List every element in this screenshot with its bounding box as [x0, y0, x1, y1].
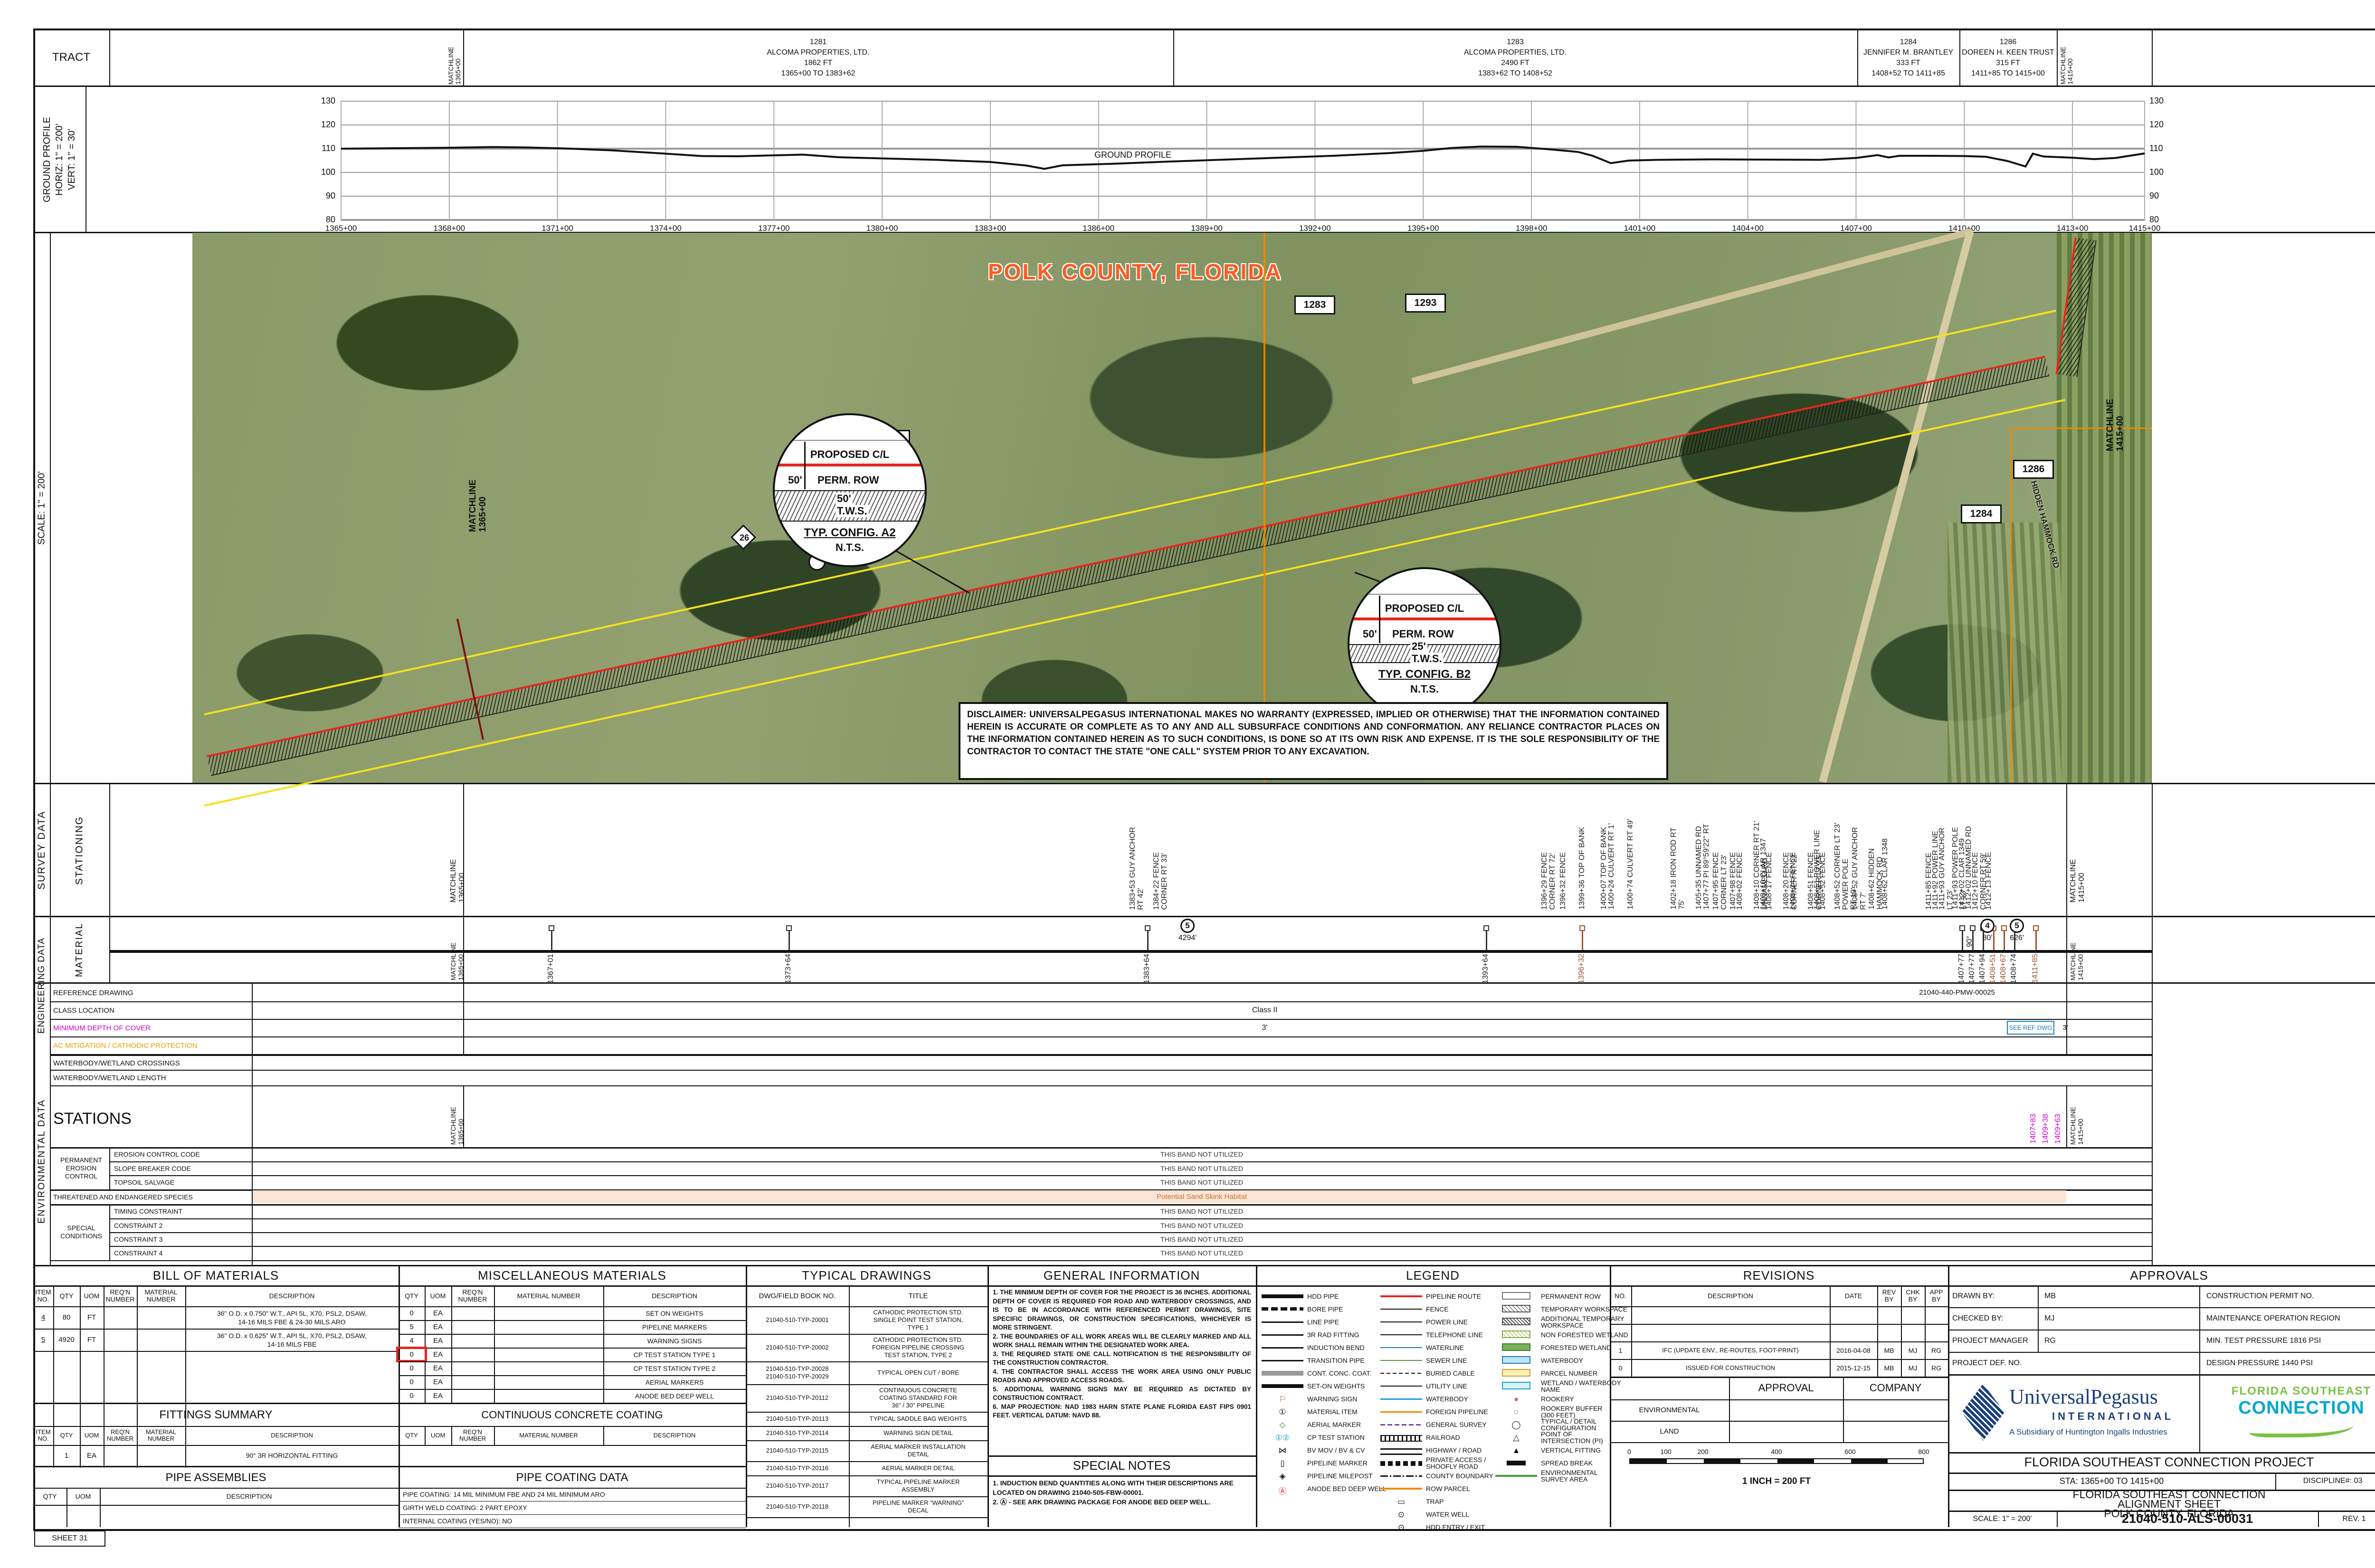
- engineering-row-value: Class II: [463, 1001, 2066, 1019]
- misc-qty: 4: [399, 1335, 425, 1346]
- typ-dwg-title: PIPELINE MARKER “WARNING” DECAL: [849, 1496, 988, 1517]
- legend-label: FORESTED WETLAND: [1541, 1344, 1612, 1351]
- rev-cell: RG: [1925, 1341, 1948, 1359]
- tws-label: T.W.S.: [836, 505, 869, 517]
- survey-callout: 1400+24 CULVERT RT 1': [1607, 823, 1615, 910]
- profile-ytick: 100: [2149, 167, 2172, 177]
- fittings-header: DESCRIPTION: [185, 1426, 399, 1445]
- gensurvey-icon: [1380, 1420, 1422, 1429]
- erosion-row-label: TOPSOIL SALVAGE: [114, 1175, 247, 1189]
- survey-callout: 1399+36 TOP OF BANK: [1578, 827, 1586, 910]
- material-marker-stem: [1962, 930, 1963, 950]
- legend-label: POWER LINE: [1426, 1319, 1468, 1325]
- profile-xtick: 1407+00: [1833, 224, 1879, 233]
- proposed-cl-line: [775, 464, 925, 466]
- profile-xtick: 1374+00: [643, 224, 688, 233]
- legend-col1-row: ⒶANODE BED DEEP WELL: [1262, 1482, 1376, 1495]
- survey-callout: 1400+74 CULVERT RT 49': [1626, 819, 1634, 910]
- map-tract-box: 1293: [1405, 294, 1446, 313]
- typ-dwg-no: 21040-510-TYP-20112: [746, 1384, 849, 1412]
- divider: [137, 1426, 138, 1468]
- legend-col3-row: WETLAND / WATERBODY NAME: [1495, 1379, 1607, 1392]
- rev-cell: [1610, 1324, 1631, 1341]
- engineering-row-value: 3': [463, 1019, 2066, 1036]
- divider: [2066, 784, 2067, 916]
- typ-config-a2-callout: PROPOSED C/L50'PERM. ROW50'T.W.S.TYP. CO…: [773, 413, 927, 567]
- special-group-label: SPECIAL CONDITIONS: [53, 1204, 109, 1260]
- misc-uom: EA: [425, 1389, 451, 1403]
- fittings-uom: EA: [80, 1445, 104, 1466]
- profile-xtick: 1413+00: [2050, 224, 2095, 233]
- approval-row-label: LAND: [1610, 1421, 1729, 1442]
- material-station: 1408+74: [2010, 954, 2018, 984]
- fittings-header: REQ'N NUMBER: [104, 1426, 137, 1445]
- revision-number: REV. 1: [2318, 1511, 2375, 1527]
- waterbody-icon: [1380, 1395, 1422, 1403]
- divider: [50, 1070, 252, 1071]
- rev-cell: 1: [1610, 1341, 1631, 1359]
- tract-cell: 1281 ALCOMA PROPERTIES, LTD. 1862 FT 136…: [463, 33, 1173, 83]
- perm-row-dim: 50': [1363, 628, 1377, 640]
- rev-cell: MJ: [1901, 1341, 1925, 1359]
- maintenance-label: MAINTENANCE OPERATION REGION: [2206, 1307, 2375, 1330]
- nts-label: N.T.S.: [775, 542, 925, 554]
- discipline: DISCIPLINE#: 03: [2275, 1473, 2375, 1490]
- legend-col3-row: TEMPORARY WORKSPACE: [1495, 1302, 1607, 1315]
- typ-config-name: TYP. CONFIG. A2: [775, 526, 925, 540]
- rev-cell: [1610, 1306, 1631, 1324]
- matitem-icon: ①: [1262, 1407, 1303, 1416]
- divider: [2066, 1085, 2067, 1147]
- survey-callout: 1408+17 FENCE: [1765, 852, 1773, 910]
- county-icon: [1380, 1472, 1422, 1480]
- pipe-assembly-length: 80': [1973, 934, 2002, 942]
- legend-col3-row: ENVIRONMENTAL SURVEY AREA: [1495, 1469, 1607, 1482]
- divider: [451, 1426, 452, 1445]
- tws-dim: 50': [836, 493, 853, 505]
- profile-xtick: 1404+00: [1725, 224, 1771, 233]
- legend-col3-row: ◌ROOKERY BUFFER (300 FEET): [1495, 1405, 1607, 1418]
- legend-label: FENCE: [1426, 1306, 1448, 1312]
- scalebar-label: 0: [1620, 1447, 1639, 1456]
- divider: [50, 1085, 252, 1086]
- warnsign-icon: ⚐: [1262, 1395, 1303, 1403]
- profile-band-label: GROUND PROFILE HORIZ: 1" = 200' VERT: 1"…: [33, 90, 85, 229]
- fsc-swoosh-icon: [2249, 1421, 2354, 1437]
- section-title-miscellaneous-materials: MISCELLANEOUS MATERIALS: [399, 1266, 746, 1285]
- divider: [603, 1426, 604, 1445]
- legend-col1-row: 3R RAD FITTING: [1262, 1328, 1376, 1341]
- legend-col2-row: ⊙HDD ENTRY / EXIT: [1380, 1520, 1492, 1533]
- pipe-assembly-circle: 5: [1180, 919, 1195, 933]
- rev-cell: [1877, 1324, 1901, 1341]
- typ-dwg-no: 21040-510-TYP-20117: [746, 1475, 849, 1496]
- titleblock-scale: SCALE: 1" = 200': [1948, 1511, 2057, 1527]
- map-scale-label: SCALE: 1" = 200': [33, 238, 50, 779]
- typ-dwg-no: 21040-510-TYP-20115: [746, 1440, 849, 1461]
- scalebar-label: 100: [1656, 1447, 1675, 1456]
- bom-item: 4: [33, 1306, 53, 1329]
- scale-bar: [1629, 1458, 1924, 1464]
- legend-label: WATER WELL: [1426, 1511, 1469, 1518]
- misc-desc: PIPELINE MARKERS: [603, 1320, 746, 1334]
- checked-by-value: MJ: [2038, 1307, 2199, 1330]
- typ-dwg-no: 21040-510-TYP-20113: [746, 1412, 849, 1426]
- typ-dwg-title: AERIAL MARKER INSTALLATION DETAIL: [849, 1440, 988, 1461]
- parcel-line-orange: [2010, 428, 2152, 429]
- misc-desc: CP TEST STATION TYPE 1: [603, 1348, 746, 1361]
- hddentry-icon: ⊙: [1380, 1523, 1422, 1531]
- special-notes-title: SPECIAL NOTES: [988, 1455, 1256, 1475]
- legend-col2-row: FOREIGN PIPELINE: [1380, 1405, 1492, 1418]
- legend-label: WATERBODY: [1541, 1357, 1583, 1364]
- survey-callout: 1384+22 FENCE CORNER RT 33': [1152, 852, 1168, 910]
- band-value: THIS BAND NOT UTILIZED: [252, 1246, 2152, 1260]
- profile-xtick: 1415+00: [2122, 224, 2167, 233]
- legend-label: FOREIGN PIPELINE: [1426, 1408, 1488, 1415]
- survey-row-label: STATIONING: [50, 789, 109, 912]
- material-station: 1408+51: [1989, 954, 1997, 984]
- material-marker-stem: [1147, 930, 1149, 950]
- misc-desc: ANODE BED DEEP WELL: [603, 1389, 746, 1403]
- survey-callout: 1396+32 FENCE: [1559, 852, 1567, 910]
- tel-icon: [1380, 1330, 1422, 1339]
- pipe-assembly-length: 626': [2003, 934, 2031, 942]
- sta-range: STA: 1365+00 TO 1415+00: [1948, 1473, 2275, 1490]
- parcelnum-icon: [1495, 1369, 1537, 1378]
- scalebar-label: 800: [1914, 1447, 1933, 1456]
- legend-label: BV MOV / BV & CV: [1307, 1447, 1365, 1454]
- fittings-title: FITTINGS SUMMARY: [33, 1403, 399, 1426]
- pipe-coating-row: INTERNAL COATING (YES/NO): NO: [403, 1514, 742, 1528]
- fsc-line1: FLORIDA SOUTHEAST: [2223, 1385, 2375, 1398]
- fittings-desc: 90° 3R HORIZONTAL FITTING: [185, 1445, 399, 1466]
- legend-label: PIPELINE MARKER: [1307, 1460, 1368, 1466]
- band-value: THIS BAND NOT UTILIZED: [252, 1175, 2152, 1189]
- profile-xtick: 1392+00: [1292, 224, 1338, 233]
- legend-label: BORE PIPE: [1307, 1306, 1343, 1312]
- utility-icon: [1380, 1382, 1422, 1390]
- perm-row-dim: 50': [788, 474, 802, 486]
- rev-cell: [1631, 1324, 1830, 1341]
- engineering-row-right: 21040-440-PMW-00025: [1852, 983, 2061, 1001]
- matchline-right-label: MATCHLINE 1415+00: [2060, 32, 2077, 85]
- rev-cell: MB: [1877, 1359, 1901, 1377]
- rev-header: APP BY: [1925, 1285, 1948, 1306]
- rev-header: REV BY: [1877, 1285, 1901, 1306]
- legend-col1-row: ▯PIPELINE MARKER: [1262, 1456, 1376, 1469]
- divider: [2152, 784, 2153, 916]
- profile-ytick: 130: [313, 96, 335, 106]
- typ-dwg-title: CONTINUOUS CONCRETE COATING STANDARD FOR…: [849, 1384, 988, 1412]
- rev-header: CHK BY: [1901, 1285, 1925, 1306]
- tws-label: T.W.S.: [1410, 653, 1444, 665]
- engineering-row-label: REFERENCE DRAWING: [53, 986, 248, 999]
- survey-callout: 1405+35 UNNAMED RD: [1695, 826, 1703, 910]
- induction-icon: [1262, 1343, 1303, 1352]
- matchline-left-label: MATCHLINE 1365+00: [447, 32, 465, 85]
- section-title-typical-drawings: TYPICAL DRAWINGS: [746, 1266, 988, 1285]
- parcel-line-orange: [2010, 428, 2012, 783]
- legend-label: CP TEST STATION: [1307, 1434, 1365, 1441]
- legend-col3-row: WATERBODY: [1495, 1354, 1607, 1367]
- ccc-header: QTY: [399, 1426, 425, 1445]
- misc-uom: EA: [425, 1334, 451, 1348]
- env-station-magenta: 1407+83: [2029, 1114, 2037, 1144]
- special-notes-text: 1. INDUCTION BEND QUANTITIES ALONG WITH …: [993, 1478, 1251, 1526]
- legend-col1-row: BORE PIPE: [1262, 1302, 1376, 1315]
- drawing-number: 21040-510-ALS-00031: [2057, 1511, 2318, 1527]
- scalebar-label: 600: [1841, 1447, 1860, 1456]
- profile-xtick: 1377+00: [751, 224, 797, 233]
- env-row-label: WATERBODY/WETLAND LENGTH: [53, 1072, 248, 1084]
- material-marker-flag: [2033, 925, 2039, 931]
- legend-label: SET-ON WEIGHTS: [1307, 1383, 1365, 1389]
- material-marker-stem: [2035, 930, 2037, 950]
- transition-icon: [1262, 1356, 1303, 1365]
- pm-value: RG: [2038, 1330, 2199, 1352]
- material-station: 1411+85: [2031, 954, 2039, 983]
- pipe-assembly-circle: 5: [2010, 919, 2024, 933]
- pipe-coating-title: PIPE COATING DATA: [399, 1466, 746, 1488]
- fittings-header: UOM: [80, 1426, 104, 1445]
- legend-col2-row: ROW PARCEL: [1380, 1482, 1492, 1495]
- material-station: 1393+64: [1482, 954, 1490, 984]
- legend-col2-row: PIPELINE ROUTE: [1380, 1290, 1492, 1302]
- legend-label: COUNTY BOUNDARY: [1426, 1473, 1493, 1479]
- typ-dwg-no: 21040-510-TYP-20001: [746, 1306, 849, 1334]
- legend-label: WETLAND / WATERBODY NAME: [1541, 1379, 1621, 1393]
- material-marker-flag: [1145, 925, 1150, 931]
- legend-col3-row: NON FORESTED WETLAND: [1495, 1328, 1607, 1341]
- setweights-icon: [1262, 1382, 1303, 1390]
- profile-ytick: 90: [2149, 191, 2172, 201]
- company-header: COMPANY: [1843, 1377, 1948, 1399]
- special-row-label: TIMING CONSTRAINT: [114, 1204, 247, 1218]
- profile-ytick: 120: [313, 120, 335, 130]
- up-tagline: A Subsidiary of Huntington Ingalls Indus…: [2009, 1427, 2167, 1437]
- legend-col2-row: TELEPHONE LINE: [1380, 1328, 1492, 1341]
- erosion-row-label: SLOPE BREAKER CODE: [114, 1161, 247, 1175]
- bore-icon: [1262, 1305, 1303, 1313]
- divider: [2066, 983, 2067, 1054]
- anode-icon: Ⓐ: [1262, 1484, 1303, 1493]
- ccc-title: CONTINUOUS CONCRETE COATING: [399, 1403, 746, 1426]
- wetname-icon: [1495, 1382, 1537, 1390]
- env-stations-label: STATIONS: [53, 1107, 248, 1131]
- profile-xtick: 1383+00: [968, 224, 1013, 233]
- profile-ytick: 120: [2149, 120, 2172, 130]
- approval-header: APPROVAL: [1729, 1377, 1843, 1399]
- typdetail-icon: ◯: [1495, 1420, 1537, 1429]
- row-north-edge: [775, 440, 925, 441]
- env-station-magenta: 1409+63: [2054, 1114, 2062, 1144]
- divider: [33, 1505, 399, 1506]
- section-title-revisions: REVISIONS: [1610, 1266, 1948, 1285]
- divider: [2152, 29, 2153, 86]
- trap-icon: ▭: [1380, 1497, 1422, 1506]
- survey-callout: 1407+95 FENCE CORNER LT 23': [1712, 852, 1728, 910]
- legend-label: PIPELINE ROUTE: [1426, 1293, 1481, 1300]
- stations-matchline-right: MATCHLINE 1415+00: [2069, 1088, 2090, 1145]
- rev-cell: MJ: [1901, 1359, 1925, 1377]
- legend-label: POINT OF INTERSECTION (PI): [1541, 1431, 1603, 1444]
- misc-uom: EA: [425, 1306, 451, 1320]
- up-wordmark: UniversalPegasus: [2009, 1385, 2158, 1409]
- bv-icon: ⋈: [1262, 1446, 1303, 1454]
- orchard-rows: [1947, 523, 2061, 783]
- drawn-by-value: MB: [2038, 1285, 2199, 1307]
- profile-xtick: 1398+00: [1509, 224, 1554, 233]
- legend-col2-row: PRIVATE ACCESS / SHOOFLY ROAD: [1380, 1456, 1492, 1469]
- material-marker-stem: [1582, 930, 1583, 950]
- misc-header: QTY: [399, 1285, 425, 1306]
- legend-col3-row: ◯TYPICAL / DETAIL CONFIGURATION: [1495, 1418, 1607, 1431]
- tract-cell: 1284 JENNIFER M. BRANTLEY 333 FT 1408+52…: [1857, 33, 1959, 83]
- bom-qty: 80: [53, 1306, 80, 1329]
- typ-config-b2-callout: PROPOSED C/L50'PERM. ROW25'T.W.S.TYP. CO…: [1348, 567, 1501, 721]
- legend-label: SEWER LINE: [1426, 1357, 1467, 1364]
- divider: [104, 1426, 104, 1468]
- divider: [2199, 1374, 2200, 1452]
- legend-label: HDD ENTRY / EXIT: [1426, 1524, 1485, 1530]
- divider: [50, 1054, 2152, 1056]
- design-row: DESIGN PRESSURE 1440 PSI: [2206, 1352, 2375, 1374]
- legend-label: VERTICAL FITTING: [1541, 1447, 1601, 1454]
- checked-by-label: CHECKED BY:: [1952, 1307, 2038, 1330]
- survey-callout: 1407+77 PI 89°59'22" RT: [1702, 824, 1710, 910]
- survey-callout: 1408+52 FENCE: [1819, 852, 1827, 910]
- material-marker-flag: [1483, 925, 1489, 931]
- universalpegasus-logo: UniversalPegasusINTERNATIONALA Subsidiar…: [1962, 1380, 2190, 1446]
- proposed-cl-label: PROPOSED C/L: [1349, 602, 1500, 615]
- divider: [109, 1147, 110, 1189]
- material-station: 1396+32: [1577, 954, 1586, 984]
- rev-cell: 2016-04-08: [1830, 1341, 1877, 1359]
- railroad-icon: [1380, 1433, 1422, 1442]
- divider: [2152, 983, 2153, 1054]
- typ-dwg-title: CATHODIC PROTECTION STD. SINGLE POINT TE…: [849, 1306, 988, 1334]
- rev-cell: 0: [1610, 1359, 1631, 1377]
- project-name: FLORIDA SOUTHEAST CONNECTION PROJECT: [1948, 1452, 2375, 1473]
- bom-desc: 36" O.D. x 0.625" W.T., API 5L, X70, PSL…: [185, 1329, 399, 1351]
- legend-label: WARNING SIGN: [1307, 1396, 1357, 1402]
- legend-col3-row: SPREAD BREAK: [1495, 1456, 1607, 1469]
- material-station: 1407+77: [1957, 954, 1966, 984]
- misc-qty: 0: [399, 1349, 425, 1360]
- legend-col2-row: GENERAL SURVEY: [1380, 1418, 1492, 1431]
- cptest-icon: ①②: [1262, 1433, 1303, 1442]
- misc-desc: SET ON WEIGHTS: [603, 1306, 746, 1320]
- pipe-coating-row: GIRTH WELD COATING: 2 PART EPOXY: [403, 1501, 742, 1514]
- legend-col1-row: ◇AERIAL MARKER: [1262, 1418, 1376, 1431]
- dim-arrow: [804, 442, 806, 489]
- legend-col1-row: ①MATERIAL ITEM: [1262, 1405, 1376, 1418]
- nfwetland-icon: [1495, 1330, 1537, 1339]
- legend-col3-row: △POINT OF INTERSECTION (PI): [1495, 1431, 1607, 1444]
- dim-arrow: [1379, 596, 1380, 643]
- profile-xtick: 1371+00: [535, 224, 580, 233]
- legend-col3-row: ADDITIONAL TEMPORARY WORKSPACE: [1495, 1315, 1607, 1328]
- legend-label: LINE PIPE: [1307, 1319, 1339, 1325]
- legend-col3-row: ▲VERTICAL FITTING: [1495, 1444, 1607, 1456]
- misc-qty: 0: [399, 1377, 425, 1387]
- misc-header: DESCRIPTION: [603, 1285, 746, 1306]
- permrow-icon: [1495, 1292, 1537, 1301]
- misc-desc: AERIAL MARKERS: [603, 1375, 746, 1389]
- typ-dwg-title: AERIAL MARKER DETAIL: [849, 1461, 988, 1475]
- survey-callout: 1408+52 GUY ANCHOR RT 7': [1851, 827, 1867, 910]
- divider: [425, 1426, 426, 1445]
- rev-cell: [1830, 1324, 1877, 1341]
- general-info-notes: 1. THE MINIMUM DEPTH OF COVER FOR THE PR…: [993, 1288, 1251, 1455]
- legend-label: PERMANENT ROW: [1541, 1293, 1601, 1300]
- perm-row-label: PERM. ROW: [1392, 628, 1454, 640]
- legend-col2-row: COUNTY BOUNDARY: [1380, 1469, 1492, 1482]
- legend-label: 3R RAD FITTING: [1307, 1331, 1359, 1338]
- rev-cell: [1631, 1306, 1830, 1324]
- special-row-label: CONSTRAINT 3: [114, 1232, 247, 1246]
- survey-callout: 1402+18 IRON ROD RT 75': [1670, 827, 1686, 910]
- legend-col1-row: LINE PIPE: [1262, 1315, 1376, 1328]
- legend-label: AERIAL MARKER: [1307, 1421, 1361, 1428]
- rev-cell: [1925, 1306, 1948, 1324]
- special-row-label: CONSTRAINT 2: [114, 1218, 247, 1232]
- legend-label: PIPELINE MILEPOST: [1307, 1473, 1373, 1479]
- legend-col1-row: ①②CP TEST STATION: [1262, 1431, 1376, 1444]
- up-diamond-icon: [1962, 1384, 2004, 1441]
- legend-label: GENERAL SURVEY: [1426, 1421, 1487, 1428]
- fittings-qty: 1: [53, 1445, 80, 1466]
- divider: [252, 983, 253, 1054]
- concoat-icon: [1262, 1369, 1303, 1378]
- divider: [1256, 1266, 1257, 1527]
- spreadbrk-icon: [1495, 1459, 1537, 1467]
- misc-qty: 5: [399, 1321, 425, 1332]
- misc-desc: CP TEST STATION TYPE 2: [603, 1361, 746, 1375]
- legend-label: BURIED CABLE: [1426, 1370, 1475, 1377]
- legend-label: INDUCTION BEND: [1307, 1344, 1365, 1351]
- profile-ytick: 110: [313, 143, 335, 153]
- divider: [494, 1426, 495, 1445]
- rev-cell: [1901, 1324, 1925, 1341]
- engineering-row-label: AC MITIGATION / CATHODIC PROTECTION: [53, 1039, 248, 1052]
- proposed-cl-label: PROPOSED C/L: [775, 448, 925, 461]
- legend-label: ROW PARCEL: [1426, 1485, 1470, 1492]
- pipe-assemblies-title: PIPE ASSEMBLIES: [33, 1466, 399, 1488]
- legend-label: ANODE BED DEEP WELL: [1307, 1485, 1386, 1492]
- ccc-header: MATERIAL NUMBER: [494, 1426, 603, 1445]
- typ-dwg-no: 21040-510-TYP-20028 21040-510-TYP-20029: [746, 1361, 849, 1384]
- legend-label: TRANSITION PIPE: [1307, 1357, 1365, 1364]
- parcel-line-orange: [1263, 233, 1265, 783]
- typ-dwg-title: TYPICAL PIPELINE MARKER ASSEMBLY: [849, 1475, 988, 1496]
- survey-callout: 1400+07 TOP OF BANK: [1600, 827, 1608, 910]
- survey-callout: 1408+02 FENCE: [1736, 852, 1744, 910]
- misc-uom: EA: [425, 1375, 451, 1389]
- band-value: THIS BAND NOT UTILIZED: [252, 1161, 2152, 1175]
- misc-header: UOM: [425, 1285, 451, 1306]
- engineering-row-ref: SEE REF DWG: [2007, 1021, 2054, 1035]
- typ-config-name: TYP. CONFIG. B2: [1349, 668, 1500, 681]
- env-station-magenta: 1409+38: [2042, 1114, 2050, 1144]
- fittings-header: QTY: [53, 1426, 80, 1445]
- profile-ytick: 80: [2149, 215, 2172, 225]
- divider: [988, 1475, 1256, 1477]
- fittings-header: MATERIAL NUMBER: [137, 1426, 185, 1445]
- profile-annotation: GROUND PROFILE: [1092, 150, 1173, 160]
- route-icon: [1380, 1292, 1422, 1301]
